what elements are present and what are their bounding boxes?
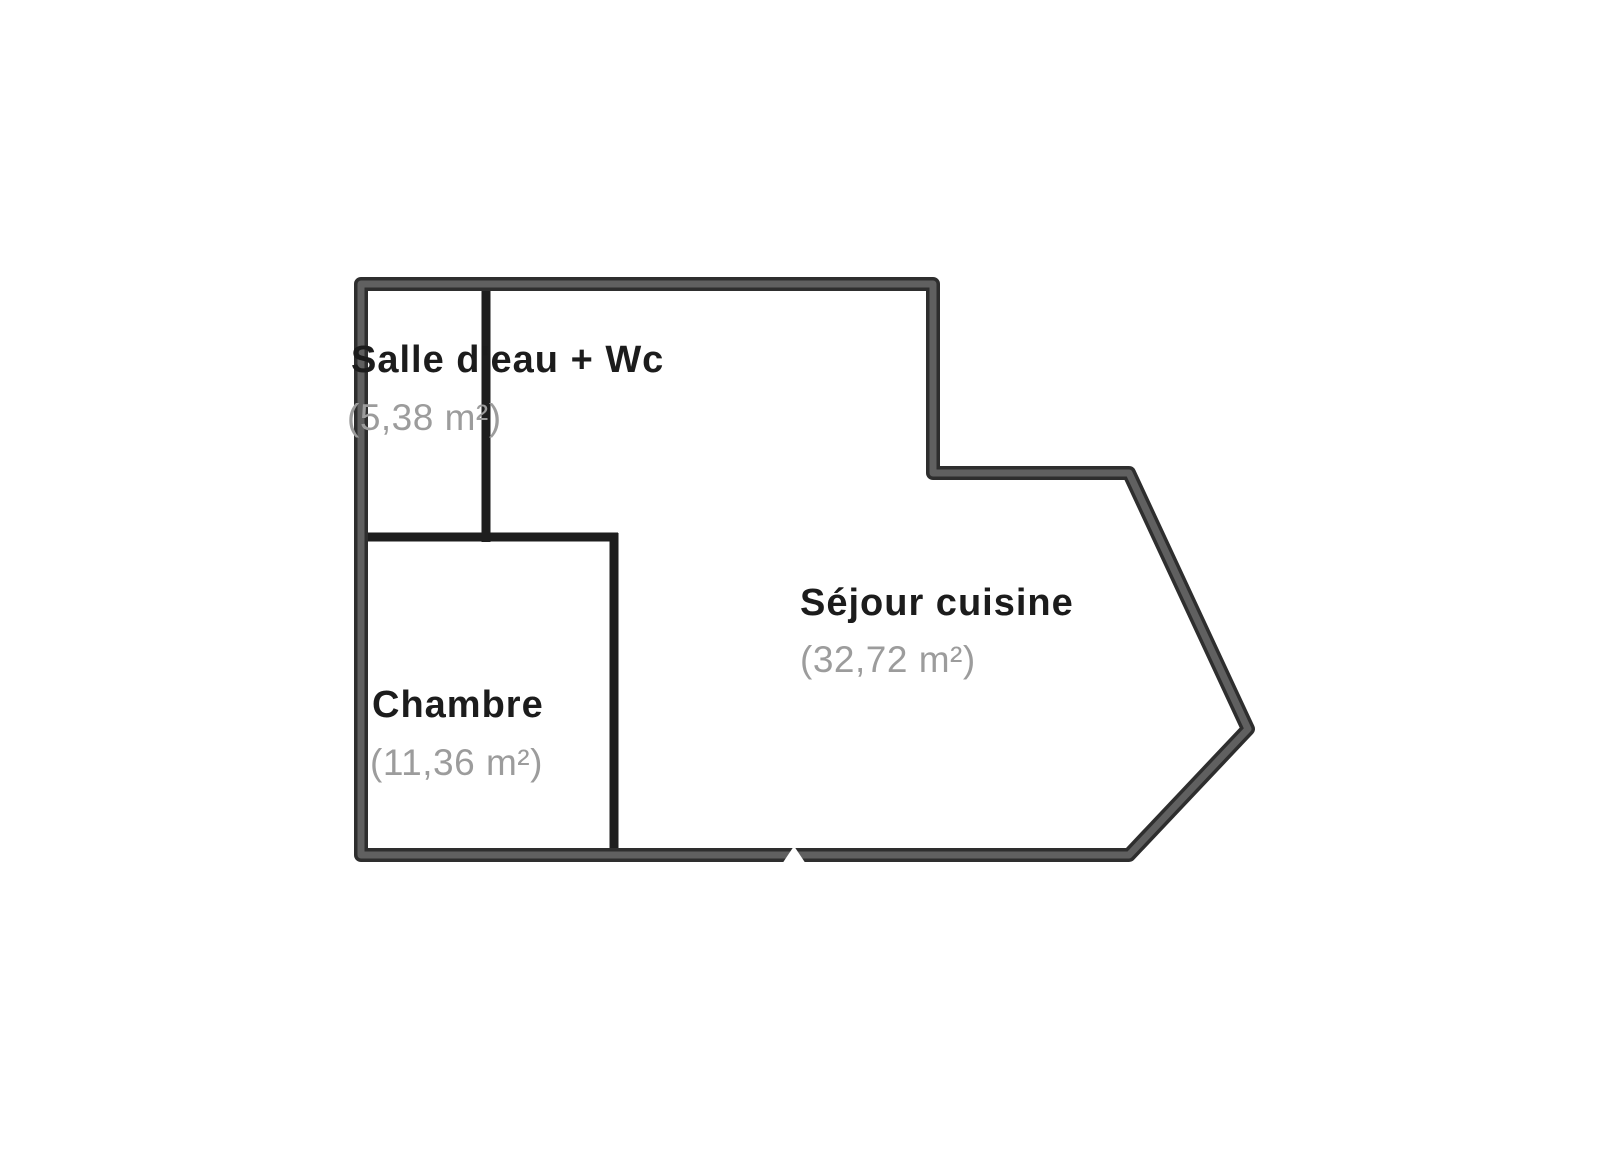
room-area-salle-eau-wc: (5,38 m²) xyxy=(347,399,502,438)
room-label-salle-eau-wc: Salle d'eau + Wc xyxy=(351,341,664,381)
exterior-wall-outline xyxy=(361,284,1248,855)
floor-plan-drawing xyxy=(0,0,1600,1175)
room-label-sejour-cuisine: Séjour cuisine xyxy=(800,584,1074,624)
room-area-sejour-cuisine: (32,72 m²) xyxy=(800,641,976,680)
floor-plan: Salle d'eau + Wc (5,38 m²) Chambre (11,3… xyxy=(0,0,1600,1175)
exterior-wall-core xyxy=(361,284,1248,855)
room-label-chambre: Chambre xyxy=(372,686,544,726)
room-area-chambre: (11,36 m²) xyxy=(370,744,543,783)
entrance-direction-marker xyxy=(766,846,822,888)
